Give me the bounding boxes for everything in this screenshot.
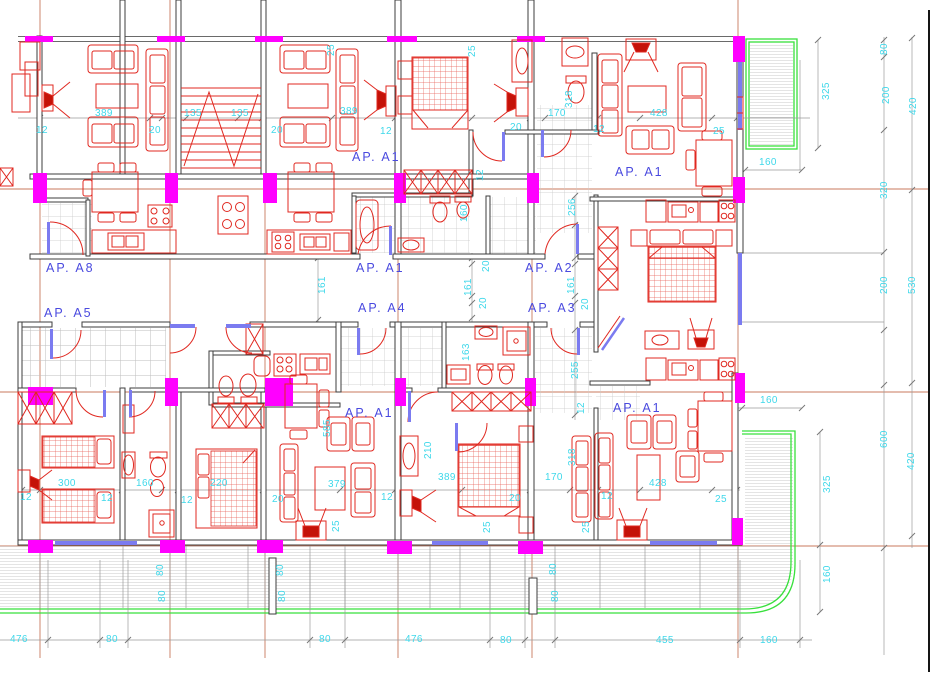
tv-a1-topright bbox=[624, 39, 658, 72]
dim-label: 256 bbox=[567, 198, 578, 216]
dim-label: 12 bbox=[36, 125, 48, 136]
dim-label: 12 bbox=[20, 492, 32, 503]
dim-label: 600 bbox=[879, 430, 890, 448]
tv-a1-mid bbox=[364, 80, 396, 120]
dim-label: 170 bbox=[548, 108, 566, 119]
dim-label: 220 bbox=[210, 478, 228, 489]
coffee-table-a1-mid bbox=[288, 84, 328, 108]
bed-botmid bbox=[458, 426, 533, 533]
label-ap-a1-corridor: AP. A1 bbox=[356, 261, 405, 275]
dim-label: 12 bbox=[475, 169, 486, 181]
dim-label: 80 bbox=[275, 564, 286, 576]
label-ap-a4: AP. A4 bbox=[358, 301, 407, 315]
dim-label: 325 bbox=[822, 475, 833, 493]
edge-furniture bbox=[0, 42, 40, 186]
dim-label: 420 bbox=[908, 97, 919, 115]
dim-label: 163 bbox=[461, 343, 472, 361]
tv-a1-botmid bbox=[296, 508, 326, 540]
dim-label: 25 bbox=[331, 520, 342, 532]
kitchen-a1-mid bbox=[218, 196, 351, 254]
dim-label: 160 bbox=[822, 565, 833, 583]
dim-label: 25 bbox=[581, 521, 592, 533]
dim-label: 420 bbox=[906, 452, 917, 470]
dim-label: 160 bbox=[136, 478, 154, 489]
bed-a2 bbox=[631, 230, 732, 302]
dim-label: 12 bbox=[380, 126, 392, 137]
dim-label: 210 bbox=[423, 441, 434, 459]
bathroom-a5 bbox=[122, 405, 174, 537]
dim-label: 200 bbox=[881, 86, 892, 104]
staircase bbox=[181, 88, 261, 168]
dim-label: 25 bbox=[326, 44, 337, 56]
dim-label: 170 bbox=[545, 472, 563, 483]
shelf-a8 bbox=[12, 74, 30, 112]
dim-label: 379 bbox=[328, 479, 346, 490]
dim-label: 12 bbox=[181, 495, 193, 506]
floor-plan-drawing: AP. A8 AP. A5 AP. A1 AP. A1 AP. A1 AP. A… bbox=[0, 0, 950, 698]
dim-label: 12 bbox=[601, 491, 613, 502]
label-ap-a1-botright: AP. A1 bbox=[613, 401, 662, 415]
label-ap-a3: AP. A3 bbox=[528, 301, 577, 315]
twin-beds-a5 bbox=[42, 436, 114, 523]
label-ap-a8: AP. A8 bbox=[46, 261, 95, 275]
dim-label: 476 bbox=[10, 634, 28, 645]
dim-label: 80 bbox=[550, 590, 561, 602]
dim-label: 161 bbox=[463, 278, 474, 296]
wardrobe-a2 bbox=[598, 227, 618, 290]
sofa-set-a1-topright bbox=[598, 54, 706, 154]
floor-plan-canvas: AP. A8 AP. A5 AP. A1 AP. A1 AP. A1 AP. A… bbox=[0, 0, 950, 698]
bathroom-botmid bbox=[447, 326, 530, 385]
balcony-top-right bbox=[746, 39, 797, 149]
dim-label: 320 bbox=[879, 181, 890, 199]
dining-table-a1-topright bbox=[686, 131, 732, 196]
dim-label: 160 bbox=[759, 157, 777, 168]
kitchen-a3 bbox=[646, 358, 735, 380]
dim-label: 255 bbox=[570, 361, 581, 379]
dim-label: 389 bbox=[95, 108, 113, 119]
dim-label: 20 bbox=[481, 260, 492, 272]
dim-label: 135 bbox=[231, 108, 249, 119]
dim-label: 20 bbox=[478, 297, 489, 309]
dresser-botmid bbox=[400, 436, 418, 476]
dim-label: 20 bbox=[510, 122, 522, 133]
dim-label: 25 bbox=[715, 494, 727, 505]
dim-label: 12 bbox=[576, 402, 587, 414]
dim-label: 25 bbox=[467, 45, 478, 57]
dim-label: 80 bbox=[277, 590, 288, 602]
dim-label: 20 bbox=[272, 494, 284, 505]
dim-label: 300 bbox=[58, 478, 76, 489]
dim-label: 20 bbox=[271, 125, 283, 136]
dim-label: 80 bbox=[548, 563, 559, 575]
dim-label: 12 bbox=[101, 493, 113, 504]
dim-label: 20 bbox=[580, 298, 591, 310]
dim-label: 530 bbox=[907, 276, 918, 294]
dim-label: 428 bbox=[649, 478, 667, 489]
dim-label: 12 bbox=[593, 124, 605, 135]
dim-label: 585 bbox=[322, 419, 333, 437]
dresser-a2 bbox=[645, 331, 679, 349]
sofa-set-a1-mid bbox=[280, 45, 358, 151]
dim-label: 160 bbox=[760, 395, 778, 406]
dim-label: 20 bbox=[149, 125, 161, 136]
dim-label: 80 bbox=[500, 635, 512, 646]
wardrobe-a4 bbox=[212, 404, 264, 428]
dim-label: 160 bbox=[459, 204, 470, 222]
label-ap-a1-botmid: AP. A1 bbox=[345, 406, 394, 420]
dim-label: 80 bbox=[155, 564, 166, 576]
coffee-table-a8 bbox=[96, 84, 138, 108]
tv2-a1-mid bbox=[494, 84, 528, 122]
kitchen-a2 bbox=[646, 200, 735, 222]
dim-label: 160 bbox=[760, 635, 778, 646]
dim-label: 80 bbox=[879, 43, 890, 55]
dining-table-a1-mid bbox=[288, 163, 334, 222]
dim-label: 389 bbox=[340, 106, 358, 117]
dim-label: 161 bbox=[566, 276, 577, 294]
dim-label: 25 bbox=[713, 126, 725, 137]
dim-label: 325 bbox=[821, 82, 832, 100]
label-ap-a2: AP. A2 bbox=[525, 261, 574, 275]
wardrobe-botmid bbox=[452, 392, 531, 411]
label-ap-a1-topmid: AP. A1 bbox=[352, 150, 401, 164]
dim-label: 161 bbox=[317, 276, 328, 294]
dim-label: 200 bbox=[879, 276, 890, 294]
tv-a8 bbox=[42, 82, 70, 118]
dim-label: 135 bbox=[184, 108, 202, 119]
sofa-set-a1-botright bbox=[595, 415, 699, 519]
dim-label: 25 bbox=[482, 521, 493, 533]
dim-label: 318 bbox=[567, 448, 578, 466]
tv-a2 bbox=[688, 318, 714, 349]
dim-label: 476 bbox=[405, 634, 423, 645]
corner-door-a2 bbox=[598, 316, 624, 350]
dim-label: 428 bbox=[650, 108, 668, 119]
dim-label: 318 bbox=[564, 90, 575, 108]
label-ap-a1-topright: AP. A1 bbox=[615, 165, 664, 179]
dim-label: 389 bbox=[438, 472, 456, 483]
dim-label: 20 bbox=[509, 493, 521, 504]
dim-label: 80 bbox=[106, 634, 118, 645]
shaft-door bbox=[246, 324, 263, 354]
tv-botmid bbox=[400, 490, 436, 522]
dim-label: 12 bbox=[381, 492, 393, 503]
tv-a1-botright bbox=[617, 508, 647, 540]
label-ap-a5: AP. A5 bbox=[44, 306, 93, 320]
dim-label: 80 bbox=[319, 634, 331, 645]
dim-label: 80 bbox=[157, 590, 168, 602]
dim-label: 455 bbox=[656, 635, 674, 646]
